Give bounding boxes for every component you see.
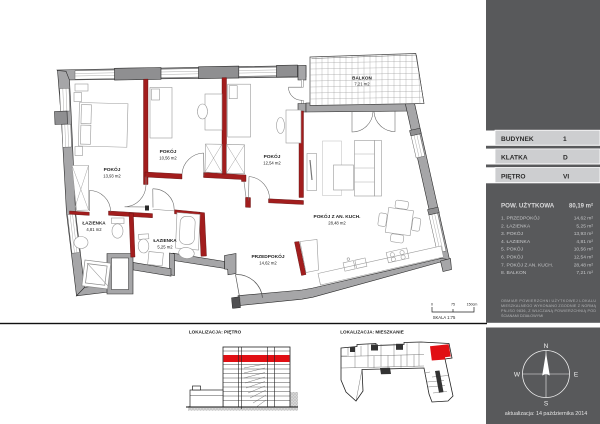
- svg-text:14,62 m2: 14,62 m2: [259, 261, 277, 266]
- svg-text:4,81 m2: 4,81 m2: [86, 227, 102, 232]
- svg-text:1: 1: [563, 136, 567, 143]
- svg-text:E: E: [574, 372, 579, 379]
- svg-text:10,56 m2: 10,56 m2: [159, 156, 177, 161]
- svg-text:8. BALKON: 8. BALKON: [501, 270, 527, 276]
- svg-text:7. POKÓJ Z AN. KUCH.: 7. POKÓJ Z AN. KUCH.: [501, 261, 553, 268]
- svg-text:5. POKÓJ: 5. POKÓJ: [501, 246, 524, 253]
- svg-text:SKALA 1:75: SKALA 1:75: [433, 315, 456, 320]
- svg-text:PIĘTRO: PIĘTRO: [501, 173, 526, 180]
- svg-text:W: W: [514, 372, 521, 379]
- svg-text:OBMIAR POWIERZCHNI UŻYTKOWEJ L: OBMIAR POWIERZCHNI UŻYTKOWEJ LOKALU: [501, 298, 596, 303]
- svg-text:7,21 m²: 7,21 m²: [576, 270, 593, 276]
- svg-text:S: S: [544, 401, 549, 408]
- svg-text:0: 0: [431, 303, 433, 307]
- svg-text:7,21 m2: 7,21 m2: [354, 82, 370, 87]
- svg-text:28,48 m2: 28,48 m2: [328, 221, 346, 226]
- svg-text:12,54 m²: 12,54 m²: [574, 255, 594, 261]
- svg-text:2. ŁAZIENKA: 2. ŁAZIENKA: [501, 223, 531, 229]
- svg-text:POW. UŻYTKOWA: POW. UŻYTKOWA: [501, 203, 555, 210]
- svg-text:BUDYNEK: BUDYNEK: [501, 136, 534, 143]
- svg-text:5,25 m²: 5,25 m²: [576, 223, 593, 229]
- svg-text:D: D: [563, 155, 568, 162]
- svg-text:MIESZKALNEGO WYKONANO ZGODNIE: MIESZKALNEGO WYKONANO ZGODNIE Z NORMĄ: [501, 304, 597, 308]
- svg-text:N: N: [544, 343, 549, 350]
- svg-text:1. PRZEDPOKÓJ: 1. PRZEDPOKÓJ: [501, 215, 540, 222]
- svg-text:75: 75: [451, 303, 455, 307]
- svg-text:3. POKÓJ: 3. POKÓJ: [501, 230, 524, 237]
- svg-text:5,25 m2: 5,25 m2: [157, 245, 173, 250]
- svg-text:28,48 m²: 28,48 m²: [574, 262, 594, 268]
- svg-text:LOKALIZACJA: MIESZKANIE: LOKALIZACJA: MIESZKANIE: [340, 330, 404, 335]
- svg-text:13,93 m2: 13,93 m2: [103, 174, 121, 179]
- svg-text:4. ŁAZIENKA: 4. ŁAZIENKA: [501, 239, 531, 245]
- svg-text:6. POKÓJ: 6. POKÓJ: [501, 254, 524, 261]
- svg-text:BALKON: BALKON: [352, 76, 372, 81]
- svg-text:VI: VI: [563, 173, 569, 180]
- svg-text:KLATKA: KLATKA: [501, 155, 528, 162]
- svg-text:PN-ISO 9836, Z WLICZANĄ POWIER: PN-ISO 9836, Z WLICZANĄ POWIERZCHNIĄ POD: [501, 309, 596, 313]
- svg-text:80,19 m²: 80,19 m²: [569, 203, 593, 210]
- svg-text:10,56 m²: 10,56 m²: [574, 247, 594, 253]
- svg-text:LOKALIZACJA: PIĘTRO: LOKALIZACJA: PIĘTRO: [189, 330, 242, 335]
- svg-text:ŁAZIENKA: ŁAZIENKA: [82, 221, 106, 226]
- svg-text:aktualizacja: 14 października: aktualizacja: 14 października 2014: [505, 411, 587, 417]
- svg-text:4,81 m²: 4,81 m²: [576, 239, 593, 245]
- svg-text:12,54 m2: 12,54 m2: [263, 161, 281, 166]
- svg-text:ŁAZIENKA: ŁAZIENKA: [153, 238, 177, 243]
- svg-text:150cm: 150cm: [467, 303, 478, 307]
- svg-text:ŚCIANAMI DZIAŁOWYMI: ŚCIANAMI DZIAŁOWYMI: [501, 313, 543, 318]
- svg-text:14,62 m²: 14,62 m²: [574, 216, 594, 222]
- svg-text:13,93 m²: 13,93 m²: [574, 231, 594, 237]
